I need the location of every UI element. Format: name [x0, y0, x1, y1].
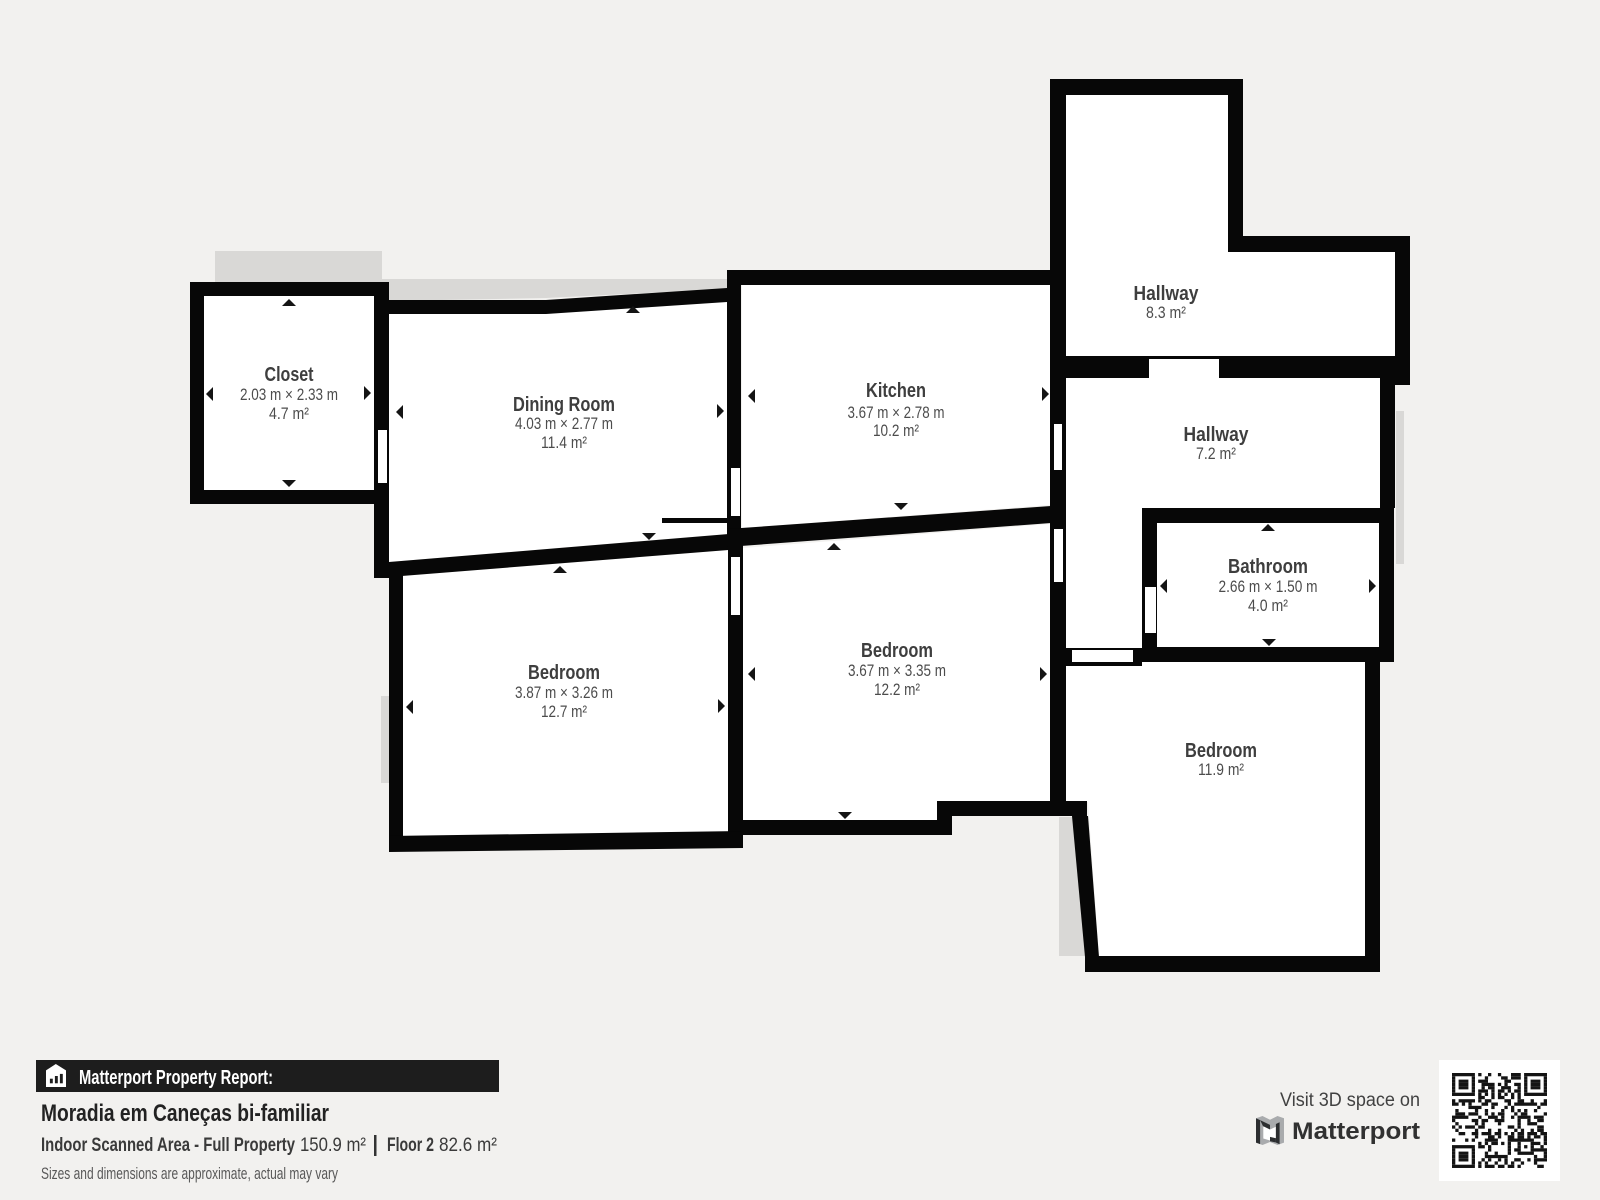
svg-text:150.9 m²: 150.9 m²	[300, 1135, 366, 1156]
svg-text:11.4 m²: 11.4 m²	[541, 433, 587, 452]
svg-text:3.67 m × 2.78 m: 3.67 m × 2.78 m	[848, 403, 945, 422]
svg-text:82.6 m²: 82.6 m²	[439, 1135, 497, 1156]
svg-text:Indoor Scanned Area - Full Pro: Indoor Scanned Area - Full Property	[41, 1135, 295, 1156]
svg-text:2.66 m × 1.50 m: 2.66 m × 1.50 m	[1219, 577, 1318, 596]
svg-text:Closet: Closet	[265, 364, 314, 386]
svg-text:10.2 m²: 10.2 m²	[873, 421, 919, 440]
svg-text:Bedroom: Bedroom	[861, 640, 933, 662]
svg-text:2.03 m × 2.33 m: 2.03 m × 2.33 m	[240, 385, 338, 404]
svg-text:Bedroom: Bedroom	[528, 662, 600, 684]
svg-text:3.67 m × 3.35 m: 3.67 m × 3.35 m	[848, 661, 946, 680]
svg-text:Hallway: Hallway	[1134, 283, 1200, 305]
svg-text:Matterport Property Report:: Matterport Property Report:	[79, 1067, 273, 1089]
svg-text:Moradia em Caneças bi-familiar: Moradia em Caneças bi-familiar	[41, 1100, 329, 1127]
svg-text:Dining Room: Dining Room	[513, 394, 615, 416]
svg-text:8.3 m²: 8.3 m²	[1146, 303, 1186, 322]
svg-text:Sizes and dimensions are appro: Sizes and dimensions are approximate, ac…	[41, 1164, 338, 1183]
svg-text:Visit 3D space on: Visit 3D space on	[1280, 1090, 1420, 1111]
svg-text:4.03 m × 2.77 m: 4.03 m × 2.77 m	[515, 414, 613, 433]
svg-text:Bedroom: Bedroom	[1185, 740, 1257, 762]
svg-text:11.9 m²: 11.9 m²	[1198, 760, 1244, 779]
svg-text:Hallway: Hallway	[1184, 424, 1250, 446]
svg-text:Kitchen: Kitchen	[866, 380, 926, 402]
svg-text:7.2 m²: 7.2 m²	[1196, 444, 1236, 463]
svg-text:12.7 m²: 12.7 m²	[541, 702, 587, 721]
svg-text:Bathroom: Bathroom	[1228, 556, 1308, 578]
svg-text:Floor 2: Floor 2	[387, 1135, 434, 1156]
svg-text:4.7 m²: 4.7 m²	[269, 404, 309, 423]
svg-text:Matterport: Matterport	[1292, 1118, 1420, 1145]
svg-text:3.87 m × 3.26 m: 3.87 m × 3.26 m	[515, 683, 613, 702]
svg-text:12.2 m²: 12.2 m²	[874, 680, 920, 699]
svg-text:4.0 m²: 4.0 m²	[1248, 596, 1288, 615]
